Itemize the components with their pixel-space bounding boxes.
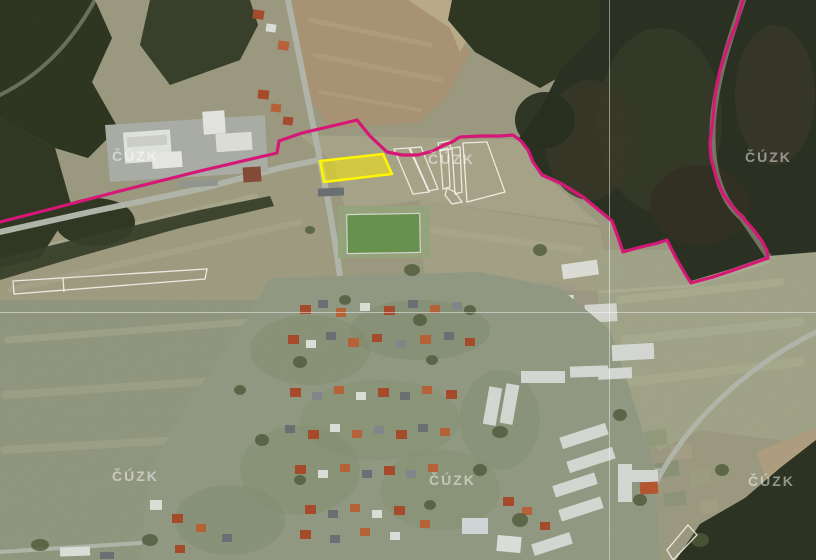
cuzk-watermark: ČÚZK (428, 150, 475, 167)
cuzk-watermark: ČÚZK (112, 467, 159, 484)
cuzk-watermark: ČÚZK (748, 472, 795, 489)
cuzk-watermark: ČÚZK (745, 148, 792, 165)
map-canvas: ČÚZK ČÚZK ČÚZK ČÚZK ČÚZK ČÚZK (0, 0, 816, 560)
map-viewport[interactable]: ČÚZK ČÚZK ČÚZK ČÚZK ČÚZK ČÚZK (0, 0, 816, 560)
cuzk-watermark: ČÚZK (112, 147, 159, 164)
cuzk-watermark: ČÚZK (429, 471, 476, 488)
